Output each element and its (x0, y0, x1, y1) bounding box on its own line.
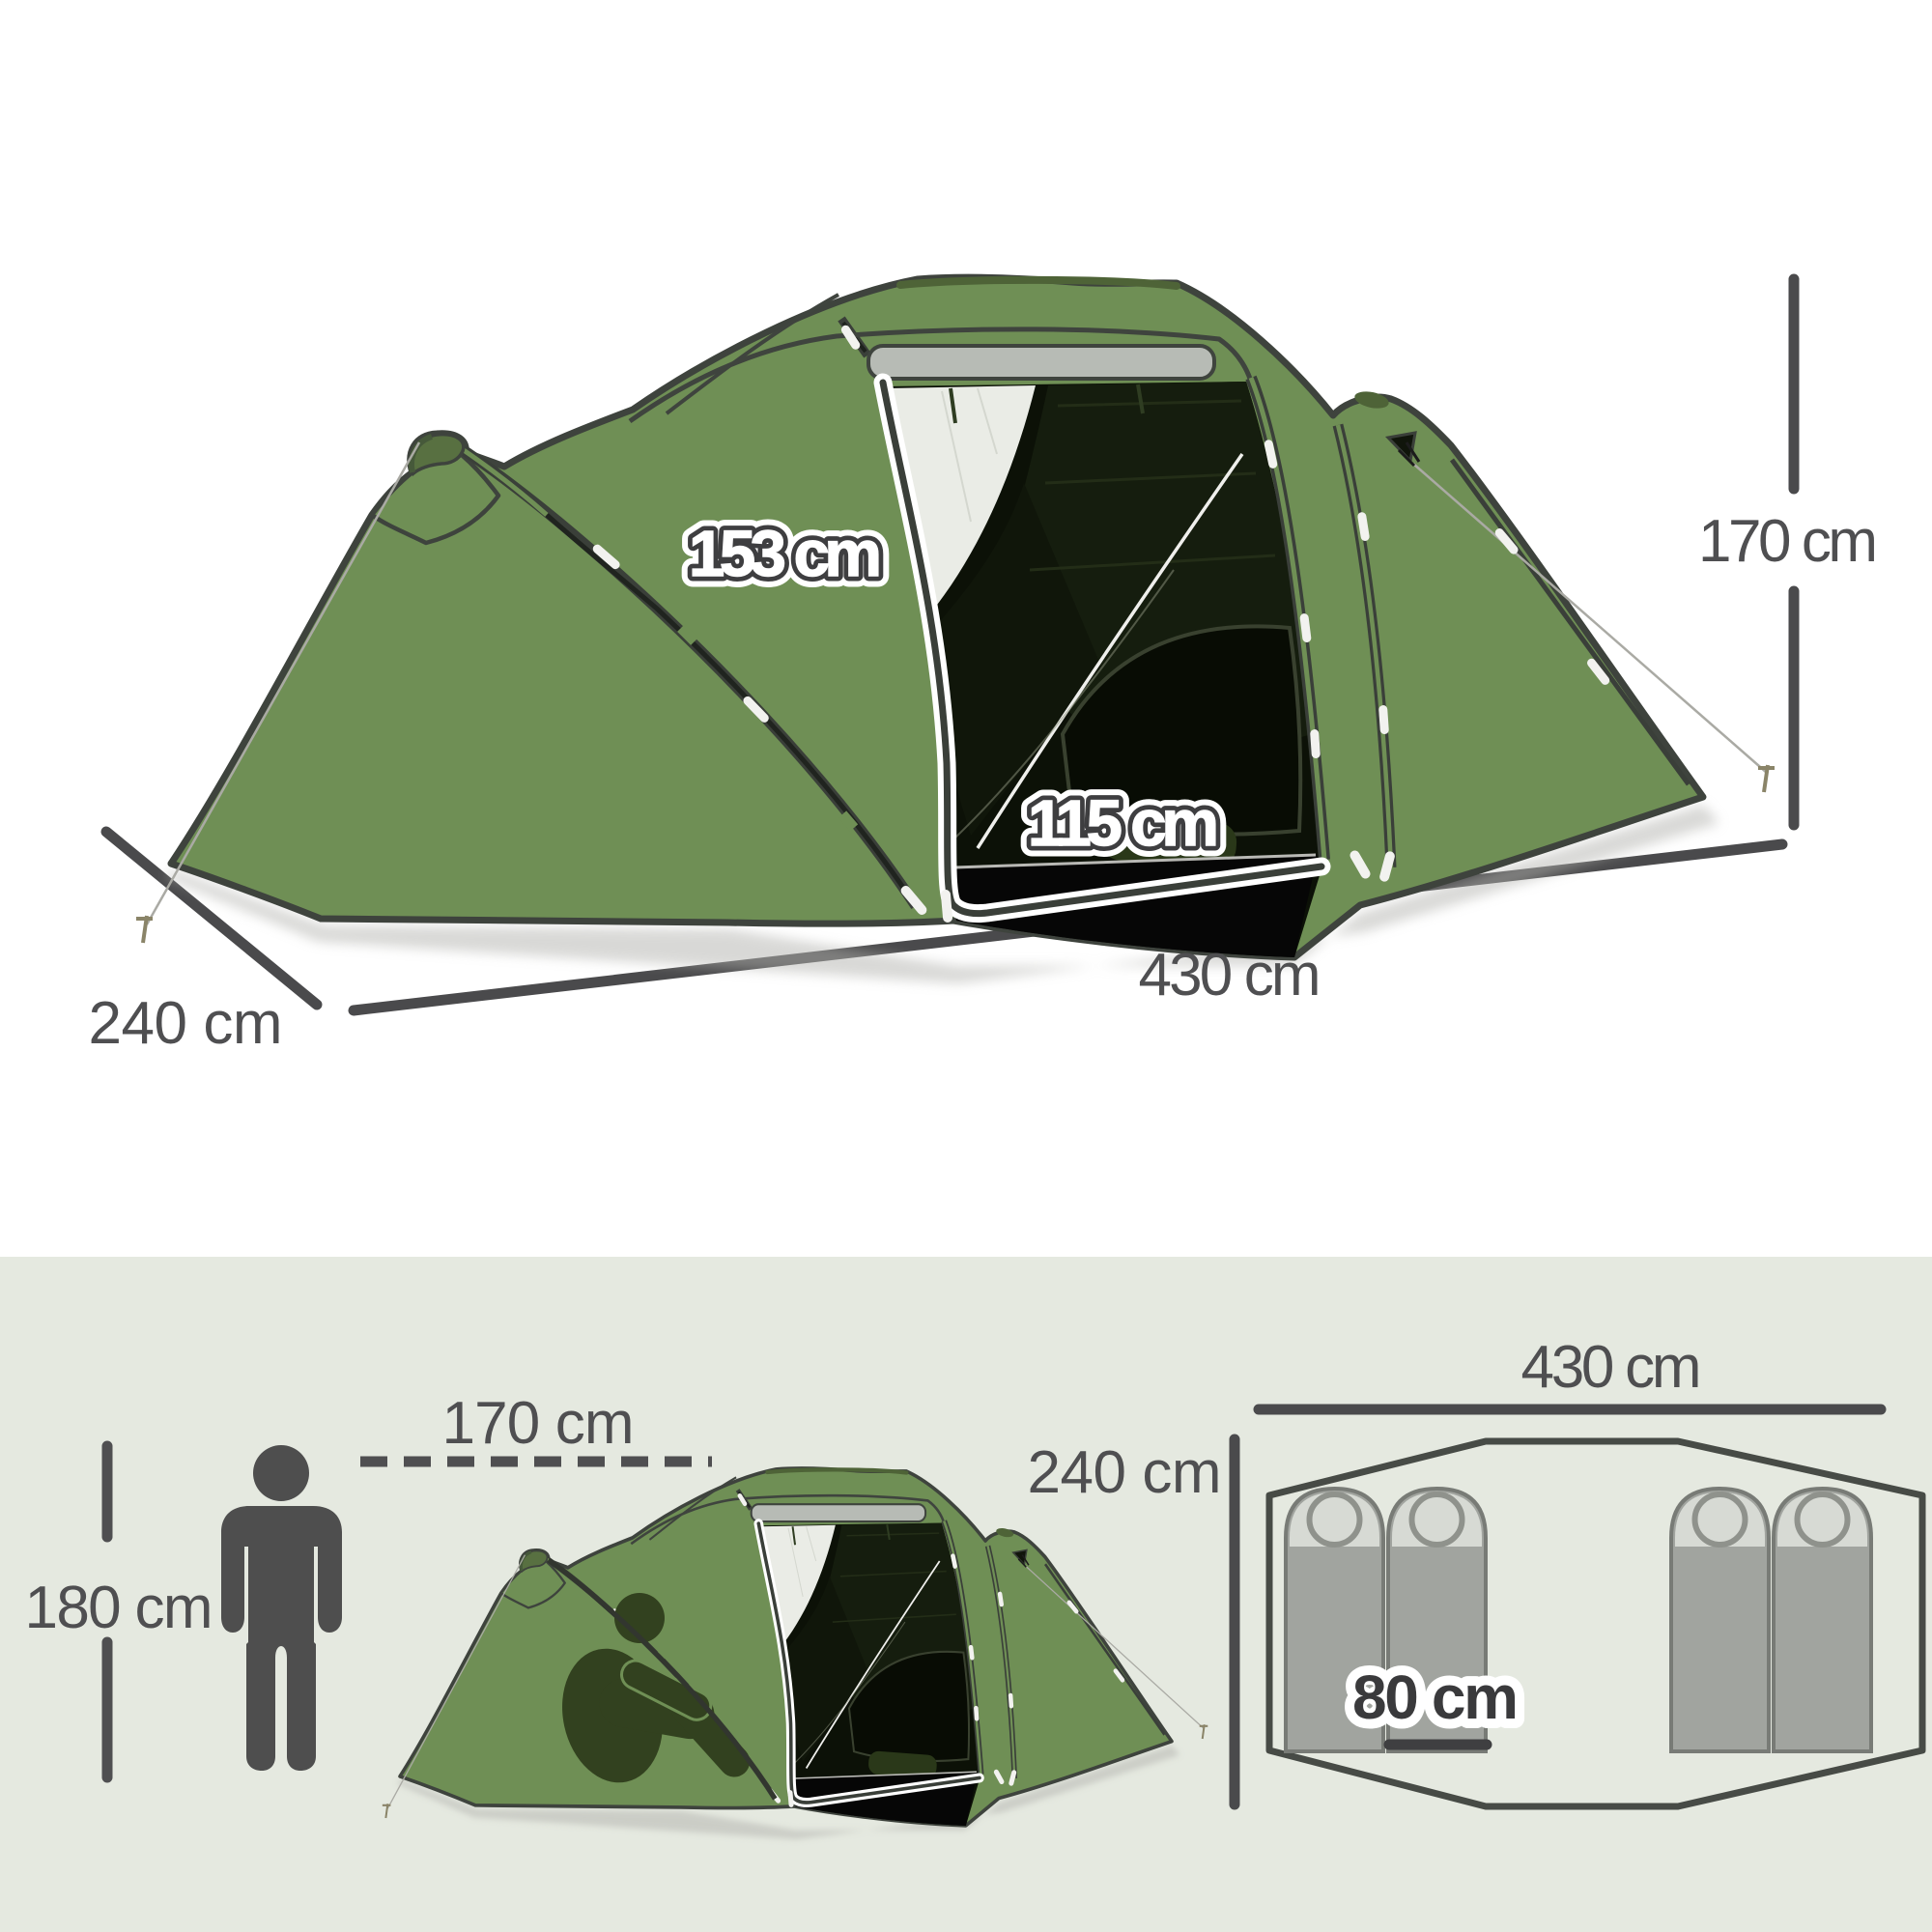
svg-text:240 cm: 240 cm (89, 990, 283, 1057)
svg-text:115 cm: 115 cm (1028, 787, 1219, 860)
svg-text:153 cm: 153 cm (689, 518, 882, 590)
svg-text:170 cm: 170 cm (442, 1390, 635, 1457)
svg-text:180 cm: 180 cm (25, 1575, 213, 1641)
svg-text:80 cm: 80 cm (1352, 1662, 1519, 1732)
svg-text:170 cm: 170 cm (1698, 508, 1878, 575)
svg-text:430 cm: 430 cm (1139, 942, 1321, 1009)
svg-text:430 cm: 430 cm (1521, 1334, 1702, 1401)
svg-text:240 cm: 240 cm (1028, 1439, 1222, 1506)
